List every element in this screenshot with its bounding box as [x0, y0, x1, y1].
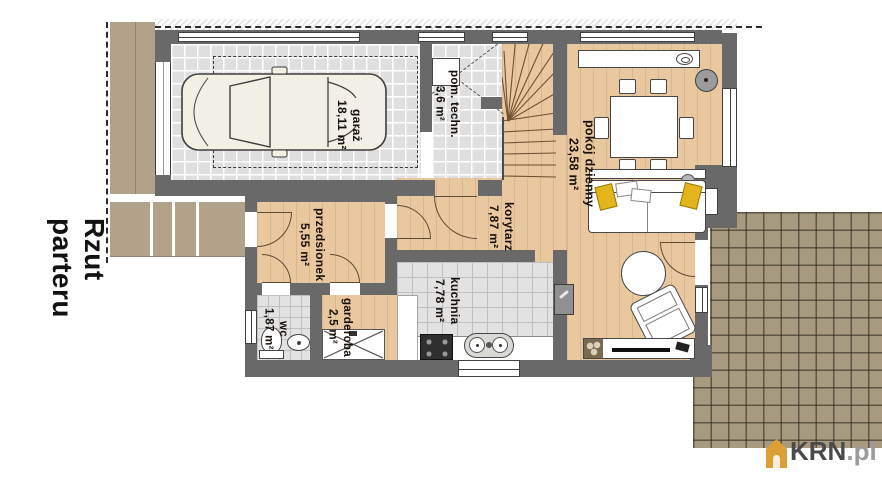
room-label-garaz: garaż 18,11 m²	[334, 82, 364, 168]
sofa-cushion	[630, 188, 651, 203]
terrace-paving	[693, 212, 882, 448]
dining-chair	[679, 117, 694, 139]
room-name: przedsionek	[312, 198, 327, 292]
room-label-przedsionek: przedsionek 5,55 m²	[297, 198, 327, 292]
watermark-brand: KRN	[790, 436, 846, 467]
window-pomtechn	[418, 32, 465, 42]
path-joint	[150, 202, 153, 256]
room-name: wc	[275, 300, 289, 358]
entry-path-paving	[110, 202, 247, 257]
room-area: 7,78 m²	[432, 264, 447, 338]
wall-garage-pomtechn	[420, 44, 432, 132]
room-area: 23,58 m²	[565, 100, 581, 228]
driveway-paving	[110, 22, 157, 194]
window-wc	[245, 310, 257, 344]
window-kitchen	[458, 360, 520, 377]
room-label-pokoj-dzienny: pokój dzienny 23,58 m²	[565, 100, 596, 228]
wall-wc-wardrobe	[310, 295, 322, 360]
kitchen-counter-left	[397, 295, 418, 362]
wall-top-right	[722, 33, 737, 90]
room-label-korytarz: korytarz 7,87 m²	[486, 188, 516, 266]
plant-pot	[584, 339, 603, 358]
room-name: garderoba	[339, 291, 353, 363]
floor-plan: garaż 18,11 m² pom. techn. 3,6 m² pokój …	[0, 0, 882, 479]
room-name: pom. techn.	[446, 58, 460, 150]
vestibule-floor	[257, 202, 397, 283]
stairs	[502, 33, 556, 180]
window-garage	[178, 32, 360, 42]
room-name: korytarz	[501, 188, 516, 266]
garage-door	[155, 62, 171, 175]
window-living-north	[580, 32, 695, 42]
kitchen-floor	[397, 262, 553, 338]
room-area: 1,87 m²	[261, 300, 275, 358]
roof-hatch-band	[155, 19, 737, 30]
room-name: kuchnia	[447, 264, 462, 338]
terrace-door-opening	[695, 240, 708, 285]
room-label-pom-techn: pom. techn. 3,6 m²	[432, 58, 461, 150]
window-stairs	[492, 32, 528, 42]
entry-door-opening	[245, 212, 257, 247]
dining-chair	[650, 79, 667, 94]
hall-door-opening	[385, 204, 397, 238]
wc-door-opening	[262, 283, 290, 295]
house-icon	[766, 439, 787, 468]
dining-table	[610, 96, 678, 158]
room-area: 3,6 m²	[432, 58, 446, 150]
room-area: 5,55 m²	[297, 198, 312, 292]
room-name: pokój dzienny	[581, 100, 597, 228]
window-sidelight-east	[695, 287, 708, 313]
driveway-joint	[135, 22, 136, 194]
room-area: 2,5 m²	[325, 291, 339, 363]
path-joint	[196, 202, 199, 256]
watermark: KRN .pl	[766, 436, 877, 468]
window-living-east	[722, 88, 737, 167]
room-name: garaż	[349, 82, 364, 168]
plan-title: Rzut parteru	[46, 218, 110, 380]
room-label-kuchnia: kuchnia 7,78 m²	[432, 264, 462, 338]
watermark-suffix: .pl	[846, 436, 876, 467]
room-label-wc: wc 1,87 m²	[261, 300, 290, 358]
fridge	[554, 284, 574, 315]
room-area: 7,87 m²	[486, 188, 501, 266]
wall-stair-stub	[481, 97, 502, 109]
tv	[612, 348, 670, 352]
path-joint	[172, 202, 175, 256]
roof-overhang-dashed-line	[155, 26, 762, 28]
dining-chair	[594, 117, 609, 139]
decor-dish	[676, 53, 693, 65]
wc-sink	[287, 334, 310, 351]
room-area: 18,11 m²	[334, 82, 349, 168]
room-label-garderoba: garderoba 2,5 m²	[325, 291, 354, 363]
dining-chair	[619, 79, 636, 94]
kitchen-sink	[464, 333, 514, 358]
fireplace-stove	[695, 69, 718, 92]
